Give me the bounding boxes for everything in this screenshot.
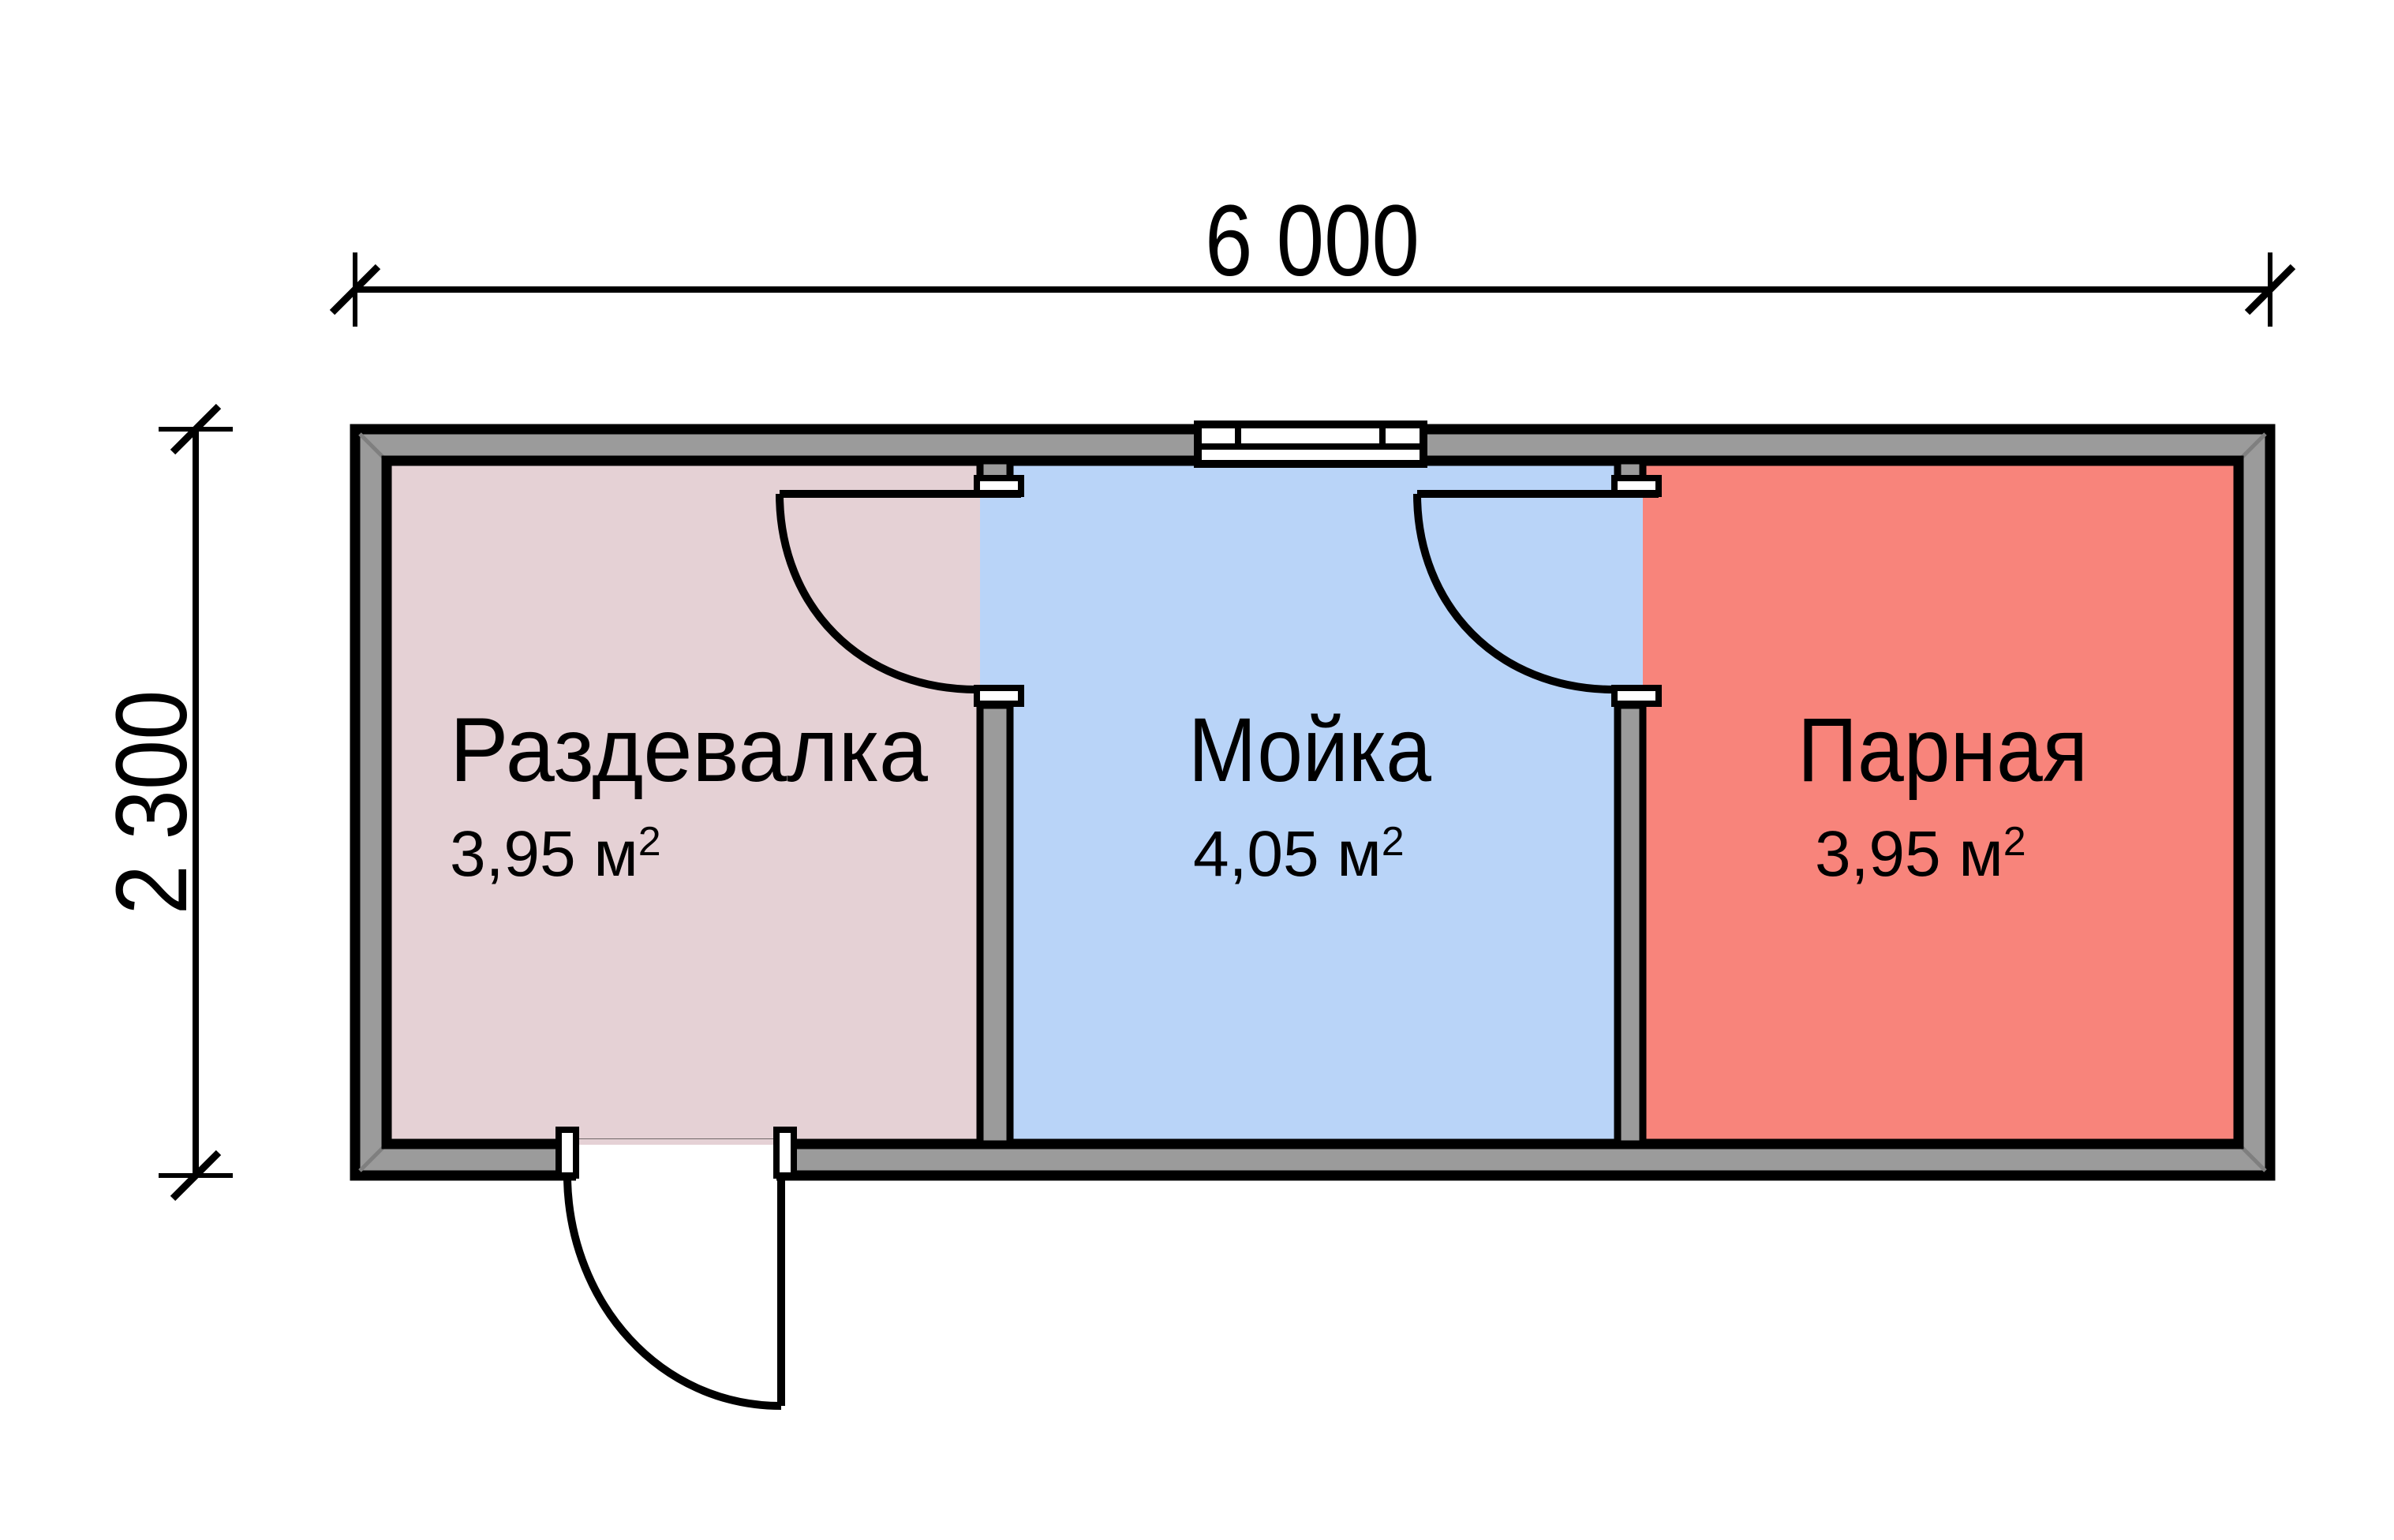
room-area-moyka: 4,05 м2 (1193, 818, 1405, 890)
room-name-parnaya: Парная (1797, 700, 2088, 801)
room-area-parnaya: 3,95 м2 (1815, 818, 2026, 890)
dimension-height: 2 300 (95, 406, 233, 1198)
window-symbol (1198, 424, 1423, 464)
building (355, 424, 2270, 1406)
door-jamb (776, 1130, 794, 1176)
door-jamb (977, 688, 1021, 704)
dimension-width: 6 000 (332, 185, 2293, 327)
partition-1 (980, 705, 1010, 1144)
room-area-razdevalka: 3,95 м2 (450, 818, 661, 890)
doorway-floor (1618, 494, 1643, 690)
partition-2 (1618, 705, 1643, 1144)
door-jamb (559, 1130, 576, 1176)
room-area-superscript: 2 (2003, 819, 2026, 865)
room-name-razdevalka: Раздевалка (450, 700, 928, 801)
room-floor-razdevalka (387, 461, 980, 1144)
entrance-opening (576, 1139, 776, 1187)
dimension-width-label: 6 000 (1205, 185, 1420, 297)
entrance-threshold (576, 1139, 776, 1145)
door-swing-arc (567, 1180, 781, 1406)
room-name-moyka: Мойка (1188, 700, 1431, 801)
door-jamb (1614, 688, 1659, 704)
room-area-value: 3,95 м (1815, 818, 2003, 890)
room-floor-moyka (1010, 461, 1618, 1144)
floor-plan-drawing: 6 000 2 300 (0, 0, 2394, 1540)
room-floor-parnaya (1643, 461, 2239, 1144)
doorway-floor (980, 494, 1010, 690)
dimension-height-label: 2 300 (95, 690, 208, 915)
room-area-value: 4,05 м (1193, 818, 1382, 890)
room-area-superscript: 2 (638, 819, 661, 865)
room-area-superscript: 2 (1382, 819, 1405, 865)
room-area-value: 3,95 м (450, 818, 638, 890)
floor-plan-page: 6 000 2 300 (0, 0, 2394, 1540)
